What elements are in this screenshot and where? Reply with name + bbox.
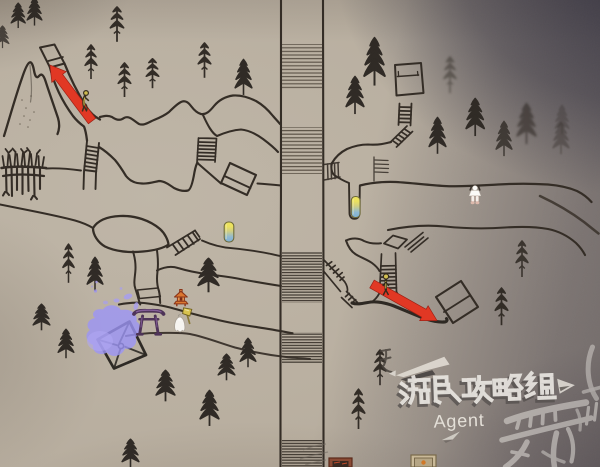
svg-text:Agent: Agent — [433, 410, 485, 432]
